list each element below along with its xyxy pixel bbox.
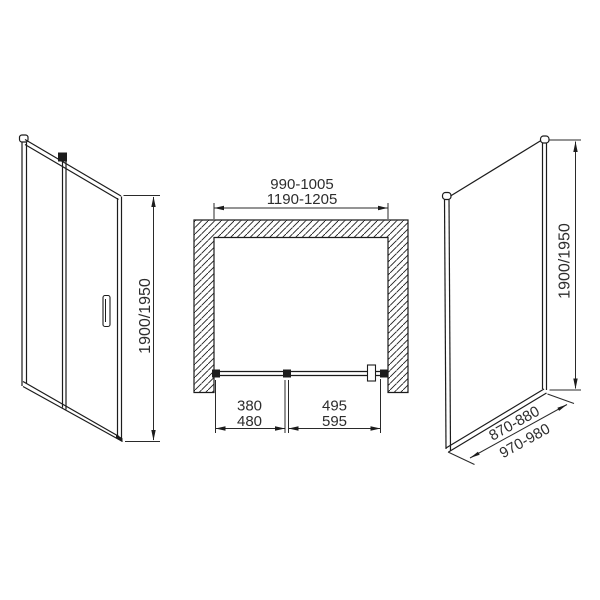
plan-door-panel-large-label: 595 [322, 413, 347, 430]
front-door-handle [103, 296, 110, 327]
dimension-arrow-left [214, 206, 224, 210]
side-right-profile [541, 136, 550, 390]
side-height-dimension: 1900/1950 [550, 140, 582, 390]
side-glass-top-edge [451, 141, 542, 197]
plan-fixed-panel-small-label: 380 [237, 398, 262, 415]
dimension-arrow-right [275, 426, 285, 430]
plan-door-panel-small-label: 495 [322, 398, 347, 415]
side-right-profile-cap [541, 136, 550, 143]
side-width-dimension: 870-880 970-980 [448, 394, 574, 465]
dimension-arrow-up [573, 142, 577, 153]
front-height-dimension: 1900/1950 [124, 196, 161, 442]
front-bottom-rail [23, 382, 123, 443]
plan-opening-width-large-label: 1190-1205 [267, 191, 338, 208]
extension-line [548, 394, 575, 404]
dimension-arrow-right [378, 206, 388, 210]
plan-fixed-panel-large-label: 480 [237, 413, 262, 430]
front-left-stile [20, 135, 29, 386]
plan-profile-center [283, 370, 291, 378]
dimension-arrow-left [216, 426, 226, 430]
front-top-rail [25, 140, 121, 200]
plan-door-track [214, 372, 388, 376]
plan-door-handle [368, 365, 376, 381]
front-middle-stile [63, 162, 67, 410]
plan-profile-right [380, 370, 388, 378]
plan-view: 990-1005 1190-1205 380 480 495 595 [194, 176, 408, 433]
dimension-arrow-right [371, 426, 381, 430]
front-pivot-block-icon [58, 153, 67, 162]
side-panel-view: 1900/1950 870-880 970-980 [443, 136, 582, 465]
plan-door-panel-dimension: 495 595 [289, 379, 381, 433]
dimension-arrow-down [151, 430, 155, 441]
front-height-dimension-label: 1900/1950 [137, 278, 154, 354]
plan-opening-dimension: 990-1005 1190-1205 [214, 176, 388, 219]
side-left-profile [443, 193, 452, 451]
dimension-arrow-down [573, 379, 577, 390]
dimension-arrow-left [289, 426, 299, 430]
side-height-dimension-label: 1900/1950 [557, 223, 574, 299]
plan-fixed-panel-dimension: 380 480 [216, 380, 289, 433]
side-left-profile-cap [443, 193, 452, 200]
front-right-stile [118, 197, 122, 441]
dimension-arrow-lower-left [470, 452, 480, 458]
technical-drawing-canvas: 1900/1950 990-1005 1190-1205 [0, 0, 600, 600]
plan-profile-left [212, 370, 220, 378]
front-elevation-view: 1900/1950 [20, 135, 161, 442]
dimension-arrow-upper-right [557, 405, 567, 411]
dimension-arrow-up [151, 197, 155, 208]
shower-enclosure-drawing: 1900/1950 990-1005 1190-1205 [0, 0, 600, 600]
